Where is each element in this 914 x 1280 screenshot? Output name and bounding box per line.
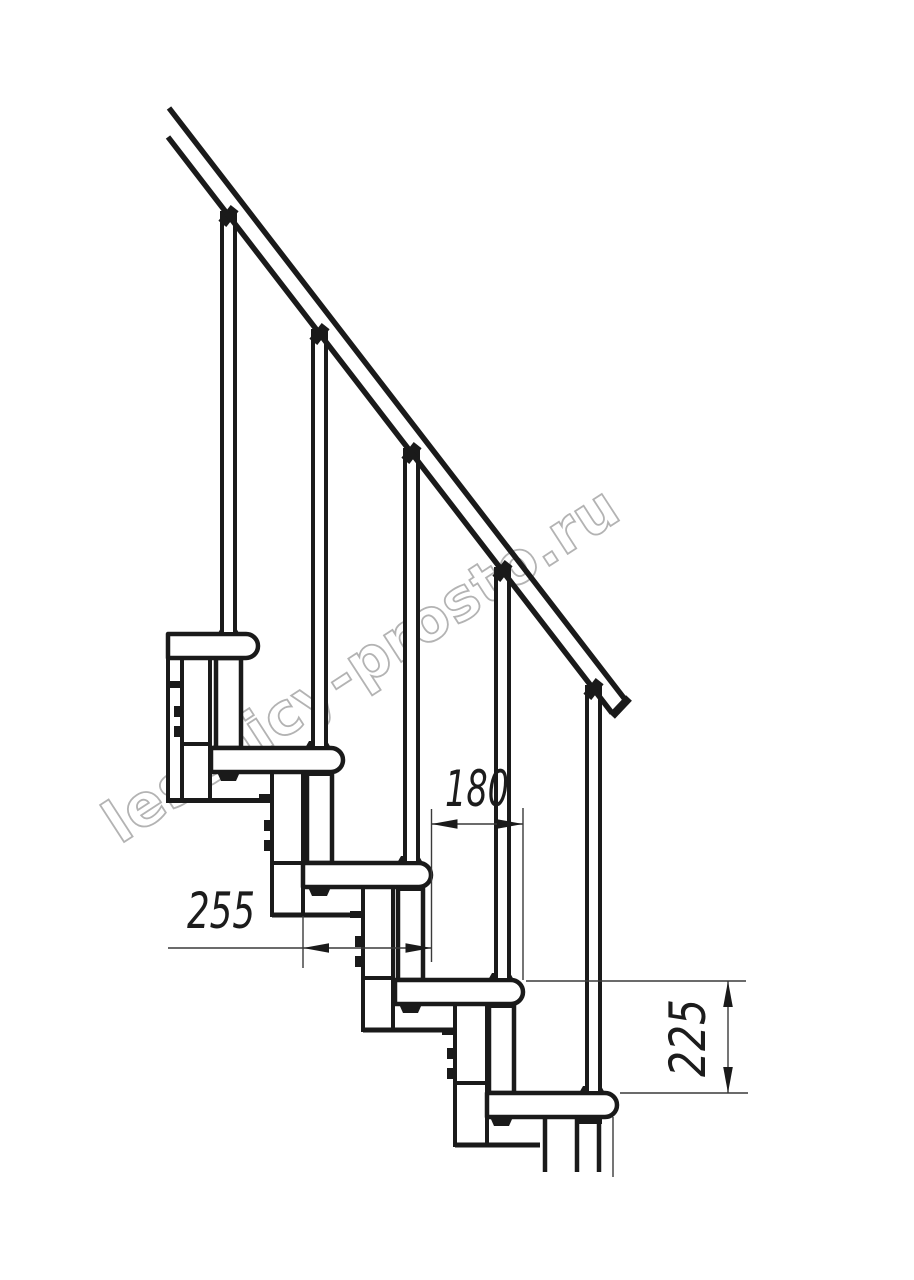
cut-off-lower-structure [545,1117,613,1177]
dimension-label-180: 180 [445,760,509,818]
baluster-3 [405,450,418,863]
tread-3 [303,863,431,887]
nut-icon [308,887,331,896]
bolt-icon [447,1048,457,1059]
arrow-down-icon [723,1067,733,1093]
baluster-1 [222,213,235,634]
arrow-left-icon [303,943,329,953]
module-bolt-plate [350,911,364,918]
inter-tread-post [216,658,241,748]
module-bolt-plate [259,794,273,801]
tread-5 [487,1093,617,1117]
tread-2 [211,748,343,772]
arrow-up-icon [723,981,733,1007]
bolt-icon [174,706,184,717]
tread-4 [395,980,523,1004]
dimension-step-rise: 225 [526,981,748,1093]
bolt-icon [447,1068,457,1079]
module-bolt-plate [168,681,183,688]
bolt-icon [264,840,274,851]
dimension-label-255: 255 [187,882,255,940]
nut-icon [490,1117,513,1126]
nut-icon [217,772,240,781]
module-column [363,887,393,1030]
inter-tread-post [398,887,423,980]
inter-tread-post [307,772,332,863]
baluster-5 [587,687,600,1093]
module-column [455,1004,487,1145]
tread-1 [168,634,258,658]
bolt-icon [355,956,365,967]
bolt-icon [355,936,365,947]
inter-tread-post [489,1004,514,1093]
baluster-2 [313,331,326,748]
staircase-drawing: lestnicy-prosto.ru [0,0,914,1280]
bolt-icon [264,820,274,831]
nut-icon [399,1004,422,1013]
bolt-icon [174,726,184,737]
module-column [272,772,303,915]
module-column [182,658,210,801]
dimension-label-225: 225 [659,999,717,1077]
module-bolt-plate [442,1028,456,1035]
arrow-left-icon [432,819,458,829]
handrail-end-cap [612,698,629,716]
